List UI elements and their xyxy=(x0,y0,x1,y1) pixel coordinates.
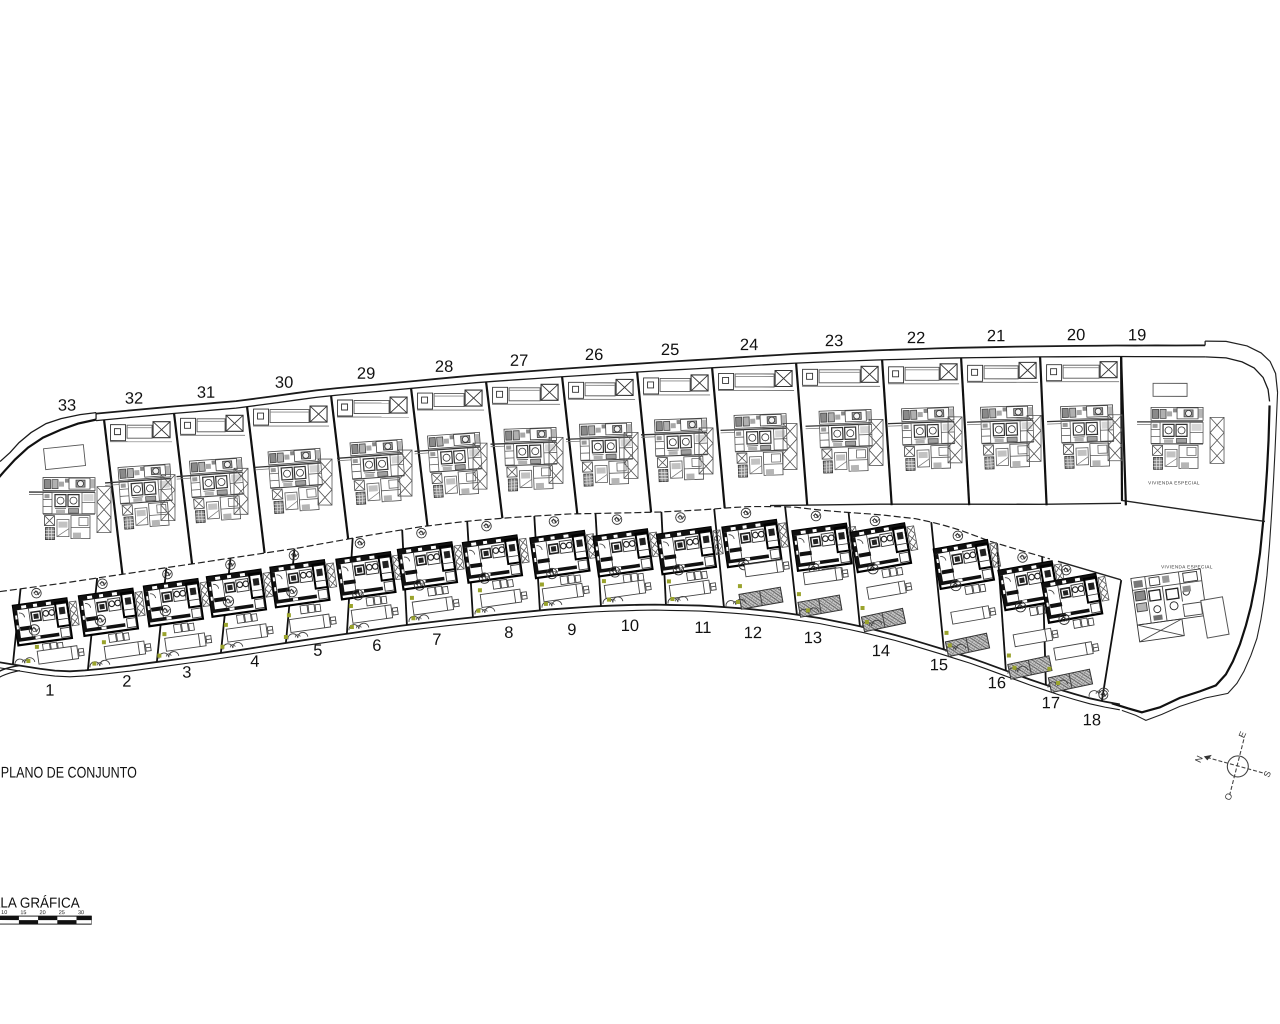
svg-text:18: 18 xyxy=(1083,711,1101,729)
svg-text:23: 23 xyxy=(825,332,843,350)
svg-text:11: 11 xyxy=(694,619,711,637)
svg-text:15: 15 xyxy=(930,656,948,674)
svg-text:ESCALA GRÁFICA: ESCALA GRÁFICA xyxy=(0,895,80,912)
svg-text:20: 20 xyxy=(40,910,46,916)
svg-text:29: 29 xyxy=(357,365,375,383)
svg-text:PLANO DE CONJUNTO: PLANO DE CONJUNTO xyxy=(1,765,137,782)
svg-text:14: 14 xyxy=(872,642,890,660)
svg-text:25: 25 xyxy=(59,910,65,916)
svg-text:2: 2 xyxy=(122,673,131,691)
svg-text:VIVIENDA ESPECIAL: VIVIENDA ESPECIAL xyxy=(1148,480,1200,485)
svg-text:31: 31 xyxy=(197,384,215,402)
svg-text:VIVIENDA ESPECIAL: VIVIENDA ESPECIAL xyxy=(1161,564,1213,569)
svg-text:5: 5 xyxy=(313,642,322,660)
svg-text:26: 26 xyxy=(585,346,603,364)
svg-text:32: 32 xyxy=(125,390,143,408)
svg-text:19: 19 xyxy=(1128,326,1146,344)
svg-text:10: 10 xyxy=(1,910,7,916)
svg-text:9: 9 xyxy=(567,621,576,639)
svg-text:16: 16 xyxy=(988,674,1006,692)
svg-text:13: 13 xyxy=(804,629,822,647)
svg-text:30: 30 xyxy=(275,374,293,392)
svg-text:3: 3 xyxy=(182,664,191,682)
svg-text:17: 17 xyxy=(1042,694,1060,712)
svg-text:6: 6 xyxy=(372,637,381,655)
svg-text:28: 28 xyxy=(435,358,453,376)
svg-text:4: 4 xyxy=(250,653,259,671)
svg-text:25: 25 xyxy=(661,341,679,359)
svg-text:30: 30 xyxy=(78,910,84,916)
svg-text:10: 10 xyxy=(621,617,639,635)
svg-text:27: 27 xyxy=(510,352,528,370)
svg-text:33: 33 xyxy=(58,397,76,415)
svg-text:7: 7 xyxy=(432,631,441,649)
svg-text:8: 8 xyxy=(504,624,513,642)
svg-text:15: 15 xyxy=(20,910,26,916)
svg-text:1: 1 xyxy=(45,682,54,700)
svg-text:20: 20 xyxy=(1067,326,1085,344)
svg-text:21: 21 xyxy=(987,327,1005,345)
svg-text:24: 24 xyxy=(740,336,758,354)
svg-text:12: 12 xyxy=(744,624,762,642)
svg-text:22: 22 xyxy=(907,329,925,347)
